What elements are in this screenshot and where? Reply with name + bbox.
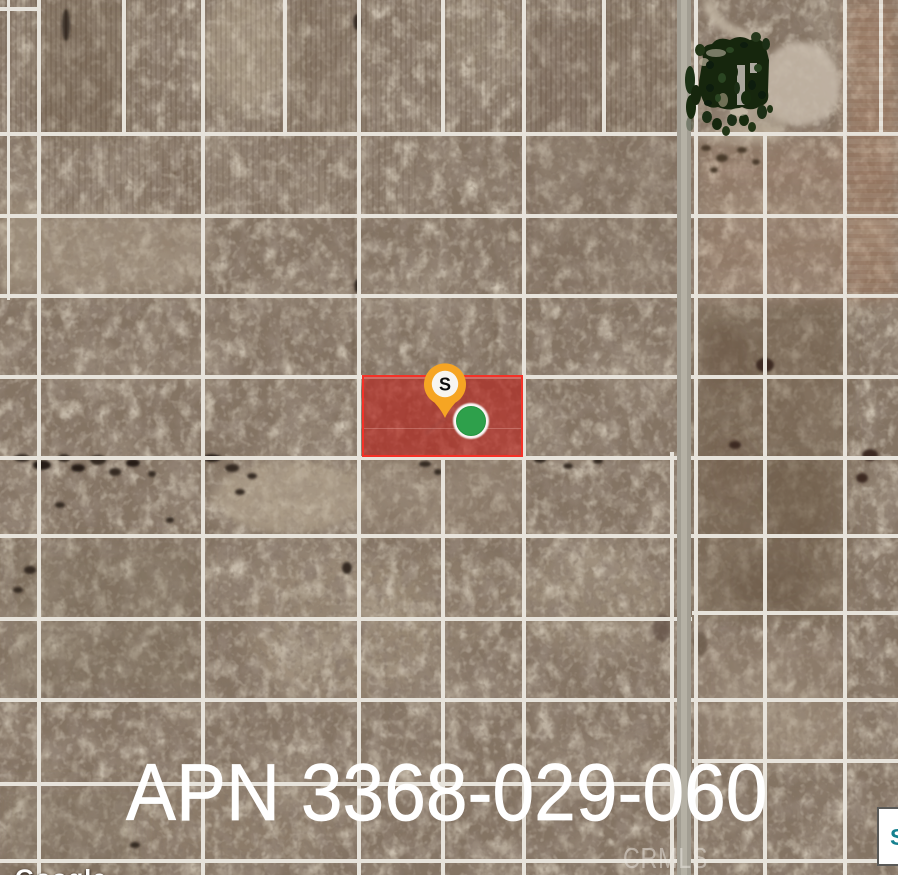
svg-text:S: S xyxy=(439,375,451,395)
